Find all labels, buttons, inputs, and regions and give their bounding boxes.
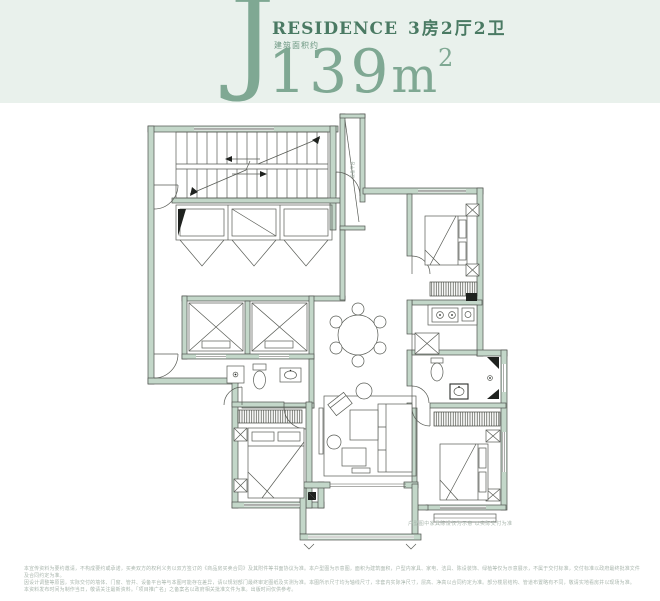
bedroom-top-right (425, 204, 479, 296)
floor-plan: 设备平台 (128, 112, 546, 558)
area-exponent: 2 (438, 44, 453, 72)
residence-label: RESIDENCE (272, 19, 398, 39)
residence-line: RESIDENCE3房2厅2卫 (272, 14, 507, 39)
area-figure: 139m2 (268, 42, 452, 102)
equipment-shaft: 设备平台 (345, 120, 359, 222)
hall-closets (176, 205, 332, 266)
bedroom-bottom-left (234, 410, 304, 498)
bathroom-master (431, 357, 499, 399)
dining-set (330, 303, 386, 367)
staircase (176, 132, 328, 198)
disclaimer-line-3: 本资料发布时间为制作当日，敬请关注最新资料。「项目推广名」之备案名以政府相关批准… (24, 587, 640, 594)
disclaimer-line-1: 本宣传资料为要约邀请，不构成要约或承诺，买卖双方的权利义务以双方签订的《商品房买… (24, 566, 640, 580)
living-room (319, 383, 416, 476)
area-unit: m (392, 48, 438, 104)
disclaimer: 本宣传资料为要约邀请，不构成要约或承诺，买卖双方的权利义务以双方签订的《商品房买… (24, 566, 640, 594)
balcony (308, 492, 316, 500)
shaft-label: 设备平台 (350, 161, 355, 178)
poster-page: J RESIDENCE3房2厅2卫 建筑面积约 139m2 (0, 0, 660, 601)
area-number: 139 (268, 37, 392, 107)
plan-caption: 户型图中家具陈设仅为示意 以实际交付为准 (408, 520, 512, 527)
disclaimer-line-2: 因设计调整等原因，实际交付的墙体、门窗、管井、设备平台等与本图可能存在差异，请以… (24, 580, 640, 587)
layout-label: 3房2厅2卫 (408, 19, 507, 39)
